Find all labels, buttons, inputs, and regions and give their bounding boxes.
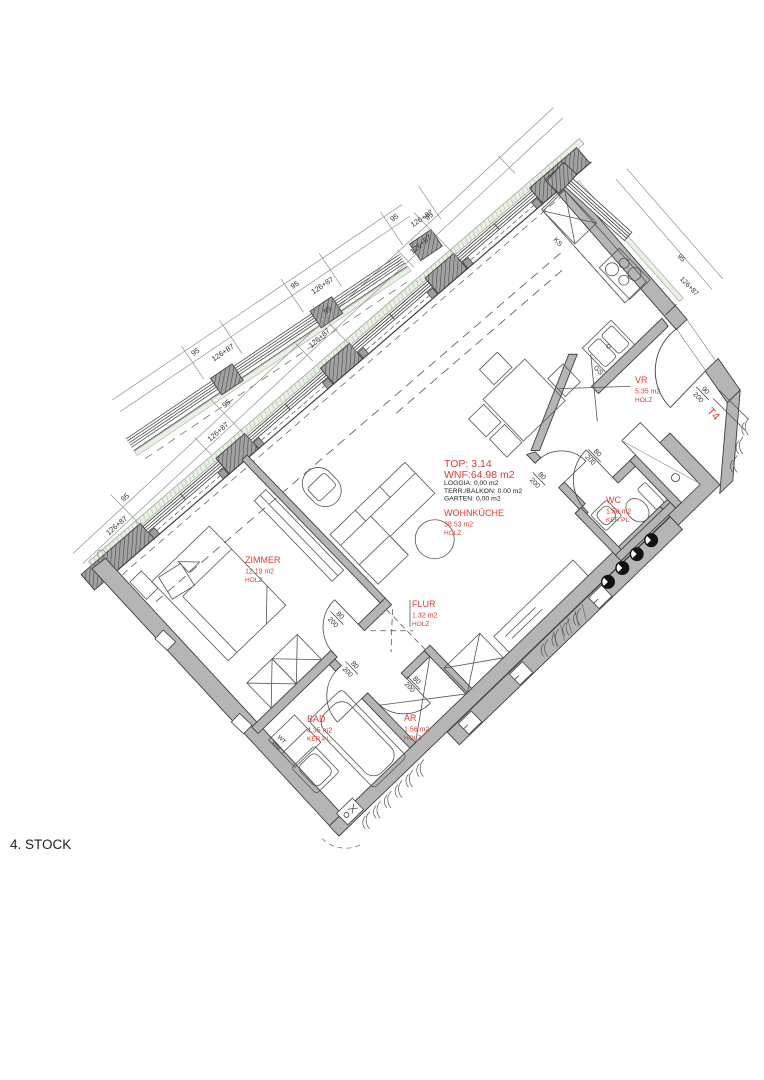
svg-text:38.53 m2: 38.53 m2 xyxy=(444,522,473,529)
svg-text:1.32 m2: 1.32 m2 xyxy=(412,613,437,620)
svg-text:HOLZ: HOLZ xyxy=(444,530,461,537)
svg-text:HOLZ: HOLZ xyxy=(404,735,421,742)
svg-text:GARTEN: 0,00 m2: GARTEN: 0,00 m2 xyxy=(444,496,501,503)
svg-text:12.19 m2: 12.19 m2 xyxy=(245,569,274,576)
svg-text:HOLZ: HOLZ xyxy=(412,621,429,628)
svg-text:TERR./BALKON: 0.00 m2: TERR./BALKON: 0.00 m2 xyxy=(444,488,522,495)
svg-text:HOLZ: HOLZ xyxy=(245,577,262,584)
svg-text:HOLZ: HOLZ xyxy=(635,397,652,404)
svg-text:5.35 m2: 5.35 m2 xyxy=(635,389,660,396)
svg-text:WC: WC xyxy=(606,495,621,505)
svg-text:4.35 m2: 4.35 m2 xyxy=(307,728,332,735)
svg-text:KER.PL.: KER.PL. xyxy=(606,517,631,524)
svg-text:1.56 m2: 1.56 m2 xyxy=(404,727,429,734)
svg-text:4. STOCK: 4. STOCK xyxy=(10,837,71,852)
svg-text:AR: AR xyxy=(404,713,417,723)
svg-text:KER.PL.: KER.PL. xyxy=(307,736,332,743)
svg-text:FLUR: FLUR xyxy=(412,599,436,609)
svg-text:BAD: BAD xyxy=(307,714,326,724)
svg-text:1.58 m2: 1.58 m2 xyxy=(606,509,631,516)
svg-text:VR: VR xyxy=(635,375,648,385)
svg-text:LOGGIA: 0,00 m2: LOGGIA: 0,00 m2 xyxy=(444,480,499,487)
svg-text:ZIMMER: ZIMMER xyxy=(245,555,281,565)
svg-text:WOHNKÜCHE: WOHNKÜCHE xyxy=(444,508,504,518)
